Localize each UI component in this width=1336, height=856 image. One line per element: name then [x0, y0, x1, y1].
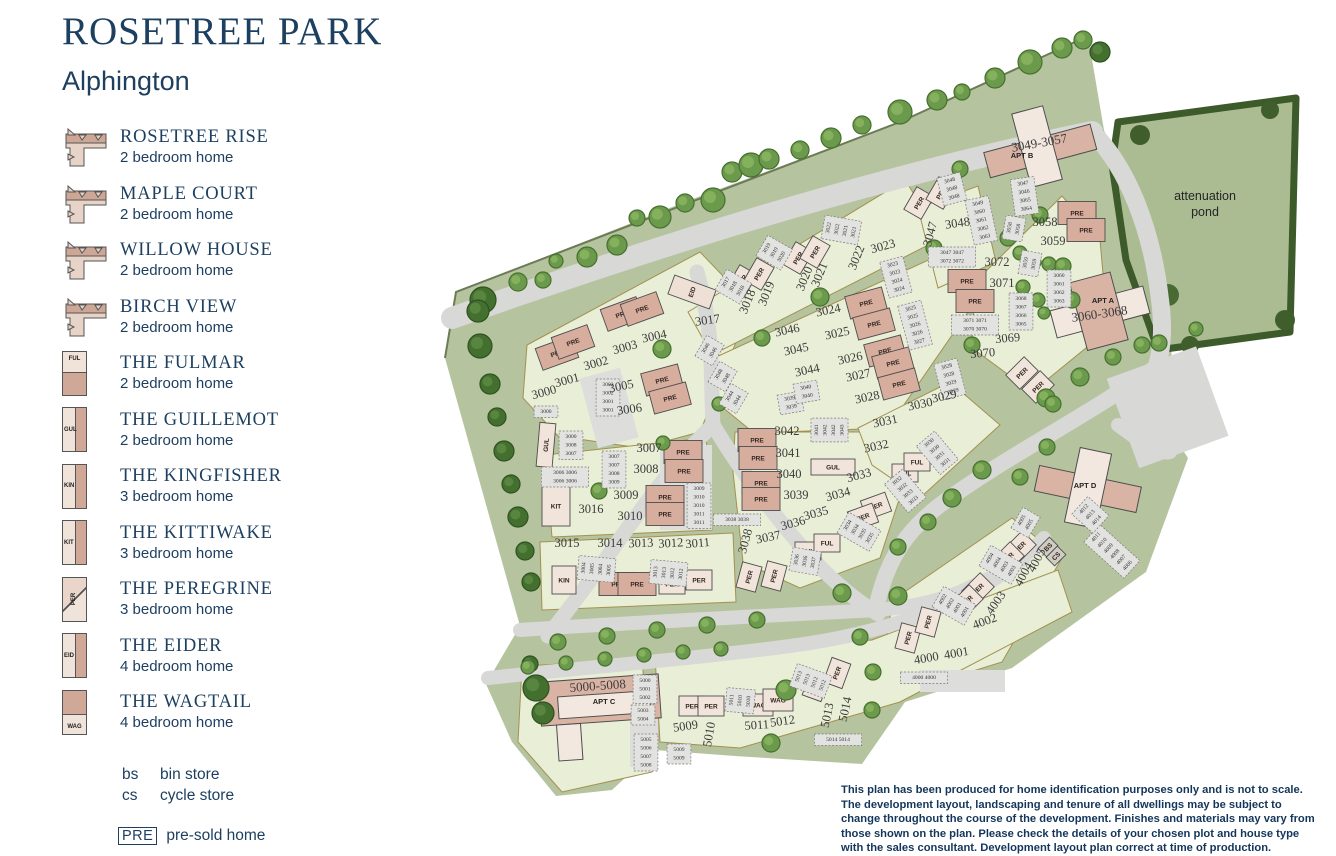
plot-number: 3007: [637, 441, 662, 455]
legend-item-rosetree-rise: ROSETREE RISE2 bedroom home: [62, 119, 462, 176]
abbreviation-list: bsbin storecscycle store: [122, 766, 462, 805]
parking-bays: 30403040: [793, 380, 820, 404]
building-label: GUL: [543, 438, 551, 452]
house-type-code: GUL: [64, 427, 77, 433]
parking-bays: 3038 3038: [713, 514, 760, 526]
svg-text:3065: 3065: [1015, 322, 1026, 328]
building-label: PER: [704, 703, 718, 710]
svg-text:5003: 5003: [637, 708, 648, 714]
svg-text:3062: 3062: [1053, 290, 1064, 296]
building-label: PER: [692, 577, 706, 584]
legend-item-maple-court: MAPLE COURT2 bedroom home: [62, 175, 462, 232]
svg-text:3011: 3011: [694, 512, 705, 518]
parking-bays: 3060306130623063: [1047, 270, 1071, 307]
house-type-desc: 3 bedroom home: [120, 601, 273, 620]
parking-bays: 4000 4000: [900, 672, 947, 684]
parking-bays: 501150105010: [725, 688, 755, 714]
svg-text:3006 3006: 3006 3006: [553, 470, 577, 476]
svg-text:5007: 5007: [640, 754, 651, 760]
abbreviation-bs: bsbin store: [122, 766, 462, 784]
ful-house-icon: FUL: [62, 351, 120, 396]
house-type-name: THE FULMAR: [120, 352, 246, 375]
parking-bays: 303630363037: [789, 547, 821, 575]
building-kin: KIN: [552, 566, 576, 594]
plot-number: 3072: [985, 255, 1010, 269]
svg-text:5005: 5005: [640, 737, 651, 743]
abbreviation-cs: cscycle store: [122, 787, 462, 805]
building-ful: FUL: [814, 534, 840, 552]
plot-number: 3008: [634, 462, 659, 476]
house-type-desc: 4 bedroom home: [120, 714, 252, 733]
house-type-desc: 3 bedroom home: [120, 488, 282, 507]
l-house-icon: [62, 296, 120, 338]
building-label: PRE: [750, 437, 764, 444]
building-label: PRE: [754, 480, 768, 487]
apartment-label: APT B: [1011, 151, 1034, 160]
svg-text:3007: 3007: [565, 451, 576, 457]
legend-list: ROSETREE RISE2 bedroom homeMAPLE COURT2 …: [62, 119, 462, 741]
plot-number: 3016: [579, 502, 604, 516]
wag-house-icon: WAG: [62, 690, 120, 735]
per-house-icon: PER: [62, 577, 120, 622]
svg-text:3047 3047: 3047 3047: [940, 250, 964, 256]
plot-number: 3009: [614, 488, 639, 502]
house-type-name: THE KINGFISHER: [120, 465, 282, 488]
svg-text:3010: 3010: [693, 503, 704, 509]
kit-house-icon: KIT: [62, 520, 120, 565]
svg-text:3007: 3007: [608, 463, 619, 469]
svg-text:5001: 5001: [639, 687, 650, 693]
svg-text:3066: 3066: [1015, 313, 1026, 319]
house-type-code: WAG: [67, 724, 81, 730]
plot-number: 3042: [775, 424, 800, 438]
parking-bays: 30593059: [1018, 250, 1042, 277]
building-per: PER: [698, 696, 724, 716]
svg-text:3005: 3005: [606, 564, 613, 576]
building-pre: PRE: [665, 460, 703, 483]
parking-bays: 3041304230423043: [811, 418, 848, 442]
house-type-name: ROSETREE RISE: [120, 126, 269, 149]
kin-house-icon: KIN: [62, 464, 120, 509]
house-type-desc: 2 bedroom home: [120, 375, 246, 394]
house-type-desc: 2 bedroom home: [120, 262, 273, 281]
svg-text:5006: 5006: [640, 746, 651, 752]
svg-text:5008: 5008: [640, 763, 651, 769]
house-type-name: MAPLE COURT: [120, 183, 258, 206]
building-label: KIN: [558, 577, 570, 584]
parking-bays: 50035004: [631, 705, 655, 725]
building-label: PRE: [1079, 227, 1093, 234]
building-pre: PRE: [646, 503, 684, 526]
parking-bays: 3013301330123012: [649, 560, 688, 587]
building-label: PRE: [754, 496, 768, 503]
page-title: ROSETREE PARK: [62, 12, 462, 53]
building-label: PER: [685, 703, 699, 710]
svg-text:3004: 3004: [597, 563, 604, 575]
svg-text:3042: 3042: [823, 424, 829, 435]
parking-bays: 30093010301030113011: [687, 483, 711, 529]
plot-number: 3013: [628, 536, 653, 551]
building-label: PRE: [1070, 210, 1084, 217]
svg-text:5009: 5009: [673, 756, 684, 762]
svg-text:3067: 3067: [1015, 305, 1026, 311]
svg-text:4000 4000: 4000 4000: [912, 675, 936, 681]
parking-bays: 3007300730083009: [602, 451, 626, 488]
building-gul: GUL: [536, 422, 556, 467]
house-type-name: THE EIDER: [120, 635, 233, 658]
plot-number: 3069: [995, 330, 1021, 346]
building-label: PRE: [968, 298, 982, 305]
parking-bays: 5014 5014: [814, 734, 861, 746]
legend-item-the-fulmar: FULTHE FULMAR2 bedroom home: [62, 345, 462, 402]
svg-text:3071 3071: 3071 3071: [963, 318, 987, 324]
house-type-name: THE PEREGRINE: [120, 578, 273, 601]
house-type-desc: 3 bedroom home: [120, 545, 273, 564]
legend-item-the-kingfisher: KINTHE KINGFISHER3 bedroom home: [62, 458, 462, 515]
svg-text:3012: 3012: [678, 568, 685, 580]
svg-text:3008: 3008: [565, 443, 576, 449]
svg-text:5011: 5011: [729, 694, 736, 706]
svg-text:5002: 5002: [639, 695, 650, 701]
svg-text:3060: 3060: [1053, 273, 1064, 279]
pond-label: pond: [1191, 205, 1219, 219]
legend-item-the-kittiwake: KITTHE KITTIWAKE3 bedroom home: [62, 514, 462, 571]
svg-text:3013: 3013: [661, 567, 668, 579]
svg-text:3068: 3068: [1015, 296, 1026, 302]
plot-number: 3012: [658, 535, 684, 550]
info-panel: ROSETREE PARK Alphington ROSETREE RISE2 …: [62, 12, 462, 845]
plot-number: 3041: [776, 446, 801, 460]
parking-bays: 500050015002: [633, 675, 657, 704]
svg-text:3005: 3005: [589, 563, 596, 575]
svg-text:5010: 5010: [737, 695, 744, 707]
house-type-name: THE GUILLEMOT: [120, 409, 279, 432]
legend-item-the-wagtail: WAGTHE WAGTAIL4 bedroom home: [62, 684, 462, 741]
parking-bays: 3047 30473072 3072: [928, 247, 975, 267]
building-label: PRE: [658, 494, 672, 501]
svg-text:5014 5014: 5014 5014: [826, 737, 850, 743]
legend-item-the-guillemot: GULTHE GUILLEMOT2 bedroom home: [62, 401, 462, 458]
parking-bays: 30583058: [1002, 215, 1026, 242]
svg-text:3038 3038: 3038 3038: [725, 517, 749, 523]
parking-bays: 5005500650075008: [634, 734, 658, 771]
building-pre: PRE: [956, 290, 994, 313]
svg-text:3008: 3008: [608, 471, 619, 477]
house-type-name: BIRCH VIEW: [120, 296, 237, 319]
svg-text:5010: 5010: [745, 695, 752, 707]
svg-text:3001: 3001: [602, 399, 613, 405]
svg-text:3006 3006: 3006 3006: [553, 479, 577, 485]
building-pre: PRE: [948, 270, 986, 293]
building-label: PRE: [676, 449, 690, 456]
plot-number: 3059: [1041, 234, 1066, 248]
svg-text:3010: 3010: [693, 495, 704, 501]
house-type-desc: 2 bedroom home: [120, 149, 269, 168]
house-type-desc: 2 bedroom home: [120, 432, 279, 451]
l-house-icon: [62, 183, 120, 225]
svg-text:3009: 3009: [608, 480, 619, 486]
parking-bays: 3000: [534, 406, 558, 418]
plot-number: 3040: [777, 467, 802, 481]
parking-bays: 3006 30063006 3006: [541, 467, 588, 487]
parking-bays: 3071 30713070 3070: [951, 315, 998, 335]
plot-number: 3058: [1033, 215, 1058, 229]
apartment-label: APT D: [1074, 481, 1097, 490]
building-label: KIT: [551, 503, 562, 510]
svg-text:3013: 3013: [653, 566, 660, 578]
parking-bays: 3047304630653064: [1010, 176, 1039, 216]
parking-bays: 300030083007: [559, 431, 583, 460]
svg-text:3063: 3063: [1053, 299, 1064, 305]
building-pre: PRE: [742, 488, 780, 511]
building-label: PRE: [630, 581, 644, 588]
plot-number: 3071: [990, 276, 1015, 290]
svg-text:5000: 5000: [639, 678, 650, 684]
apartment-label: APT C: [593, 697, 616, 706]
building-pre: PRE: [739, 447, 777, 470]
house-type-name: THE KITTIWAKE: [120, 522, 273, 545]
house-type-desc: 2 bedroom home: [120, 319, 237, 338]
legend-item-birch-view: BIRCH VIEW2 bedroom home: [62, 288, 462, 345]
svg-text:3000: 3000: [540, 409, 551, 415]
legend-item-willow-house: WILLOW HOUSE2 bedroom home: [62, 232, 462, 289]
svg-text:3041: 3041: [814, 424, 820, 435]
gul-house-icon: GUL: [62, 407, 120, 452]
plot-number: 3014: [598, 536, 624, 550]
house-type-desc: 2 bedroom home: [120, 206, 258, 225]
parking-bays: 50095009: [667, 744, 691, 764]
house-type-name: THE WAGTAIL: [120, 691, 252, 714]
apartment-label: APT A: [1092, 296, 1115, 305]
pond-label: attenuation: [1174, 189, 1236, 203]
svg-text:3007: 3007: [608, 454, 619, 460]
building-pre: PRE: [1067, 219, 1105, 242]
house-type-code: EID: [64, 653, 74, 659]
house-type-code: KIT: [64, 540, 74, 546]
disclaimer-text: This plan has been produced for home ide…: [841, 783, 1321, 856]
building-label: FUL: [821, 540, 834, 547]
svg-text:3009: 3009: [693, 486, 704, 492]
building-kit: KIT: [542, 486, 570, 526]
building-per: PER: [686, 570, 712, 590]
plot-number: 3011: [685, 535, 711, 551]
l-house-icon: [62, 126, 120, 168]
building-label: PRE: [658, 511, 672, 518]
house-type-code: KIN: [64, 483, 74, 489]
building-label: PRE: [960, 278, 974, 285]
svg-text:3011: 3011: [694, 520, 705, 526]
parking-bays: 3068306730663065: [1009, 293, 1033, 330]
house-type-code: PER: [72, 593, 78, 605]
building-label: PRE: [751, 455, 765, 462]
l-house-icon: [62, 239, 120, 281]
plot-number: 3070: [970, 345, 996, 361]
plot-number: 3039: [784, 488, 809, 502]
building-label: FUL: [911, 459, 924, 466]
plot-number: 3015: [555, 536, 580, 550]
svg-text:3070 3070: 3070 3070: [963, 327, 987, 333]
svg-text:3072 3072: 3072 3072: [940, 259, 964, 265]
page-subtitle: Alphington: [62, 66, 462, 97]
svg-text:3000: 3000: [565, 434, 576, 440]
svg-text:3004: 3004: [581, 562, 588, 574]
svg-text:3012: 3012: [669, 567, 676, 579]
house-type-name: WILLOW HOUSE: [120, 239, 273, 262]
building-label: GUL: [826, 464, 840, 471]
eid-house-icon: EID: [62, 633, 120, 678]
house-type-desc: 4 bedroom home: [120, 658, 233, 677]
parking-bays: 3004300530043005: [577, 556, 616, 583]
plot-number: 3010: [618, 509, 643, 523]
svg-text:3001: 3001: [602, 408, 613, 414]
plot-number: 5011: [744, 717, 769, 733]
house-type-code: FUL: [69, 356, 81, 362]
svg-text:3043: 3043: [840, 424, 846, 435]
svg-text:3061: 3061: [1053, 282, 1064, 288]
svg-text:5009: 5009: [673, 747, 684, 753]
legend-item-the-peregrine: PERTHE PEREGRINE3 bedroom home: [62, 571, 462, 628]
legend-item-the-eider: EIDTHE EIDER4 bedroom home: [62, 627, 462, 684]
svg-text:5004: 5004: [637, 717, 648, 723]
svg-text:3042: 3042: [831, 424, 837, 435]
building-label: PRE: [677, 468, 691, 475]
